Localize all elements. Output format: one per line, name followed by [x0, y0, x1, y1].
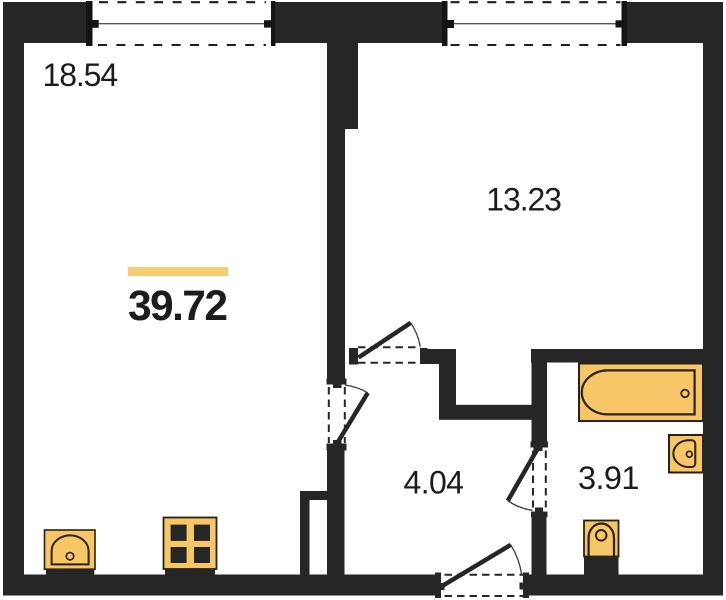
svg-text:39.72: 39.72: [128, 283, 226, 330]
svg-text:3.91: 3.91: [578, 460, 639, 496]
svg-text:18.54: 18.54: [43, 57, 118, 93]
svg-text:13.23: 13.23: [486, 182, 561, 218]
svg-text:4.04: 4.04: [404, 465, 464, 501]
